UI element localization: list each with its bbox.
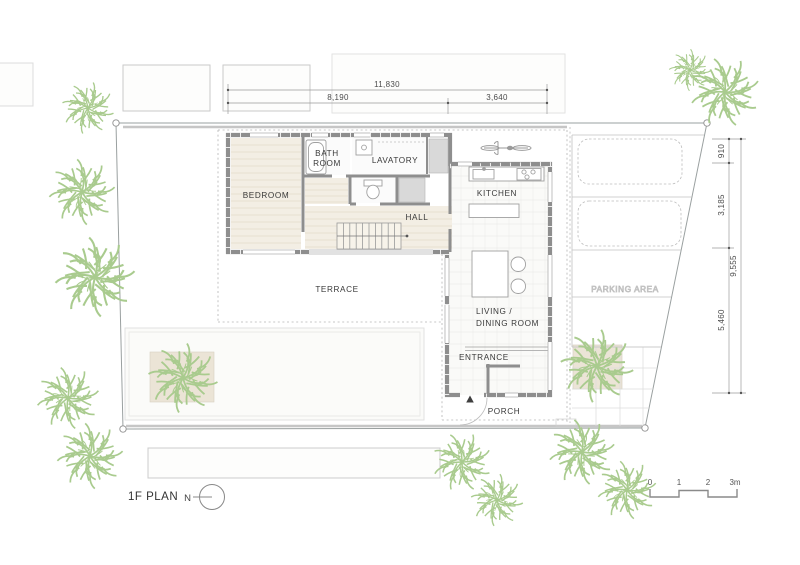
scale-bar: 0 1 2 3m [648, 478, 741, 497]
kitchen-label: KITCHEN [477, 189, 517, 198]
dim-right-seg1: 910 [717, 144, 726, 158]
parking-area-label: PARKING AREA [591, 285, 659, 294]
scale-tick-2: 2 [706, 478, 711, 487]
kitchen-sink [473, 170, 494, 180]
stairs [337, 223, 408, 249]
tree-icon [41, 223, 149, 331]
entrance-label: ENTRANCE [459, 353, 509, 362]
living-label-line2: DINING ROOM [476, 319, 539, 328]
tree-icon [555, 324, 639, 408]
living-label-line1: LIVING / [476, 307, 512, 316]
floor-plan-svg: PARKING AREA [0, 0, 800, 565]
tree-icon [458, 461, 536, 539]
car-outline [578, 139, 682, 246]
toilet-bowl [367, 185, 379, 199]
bedroom-label: BEDROOM [243, 191, 290, 200]
plan-title: 1F PLAN [128, 491, 178, 503]
dim-width-right: 3,640 [486, 93, 508, 102]
terrace-label: TERRACE [315, 285, 358, 294]
dim-total-width: 11,830 [374, 80, 400, 89]
tree-icon [537, 407, 627, 497]
tree-icon [26, 356, 111, 441]
dim-width-left: 8,190 [327, 93, 349, 102]
entry-arrow-icon [466, 396, 474, 403]
north-arrow [193, 485, 225, 510]
porch-label: PORCH [488, 407, 521, 416]
bathroom-label-line1: BATH [315, 149, 339, 158]
bicycle-icon [481, 142, 531, 155]
dim-right-seg3: 5,460 [717, 309, 726, 331]
garden-area [125, 328, 424, 420]
north-label: N [184, 493, 191, 504]
tree-icon [60, 80, 115, 135]
tree-icon [36, 146, 129, 239]
bathroom-label-line2: ROOM [313, 159, 341, 168]
scale-tick-3m: 3m [729, 478, 740, 487]
scale-tick-0: 0 [648, 478, 653, 487]
scale-tick-1: 1 [677, 478, 682, 487]
tree-icon [675, 42, 775, 142]
floor-plan-drawing: PARKING AREA [0, 0, 800, 565]
dimension-right: 910 3,185 5,460 9,555 [712, 138, 746, 394]
dim-right-total: 9,555 [729, 255, 738, 277]
hall-label: HALL [406, 213, 429, 222]
tree-icon [664, 44, 715, 95]
toilet-side-closet [399, 178, 425, 202]
kitchen-island [469, 204, 519, 218]
dining-chair [511, 279, 526, 294]
scale-bar-shape [650, 489, 737, 497]
lavatory-label: LAVATORY [372, 156, 418, 165]
tree-icon [45, 411, 135, 501]
dim-right-seg2: 3,185 [717, 194, 726, 216]
dining-table [472, 251, 508, 297]
lavatory-closet [429, 139, 448, 173]
tree-icon [585, 448, 668, 531]
dining-chair [511, 257, 526, 272]
title-block: 1F PLAN N [128, 485, 225, 510]
